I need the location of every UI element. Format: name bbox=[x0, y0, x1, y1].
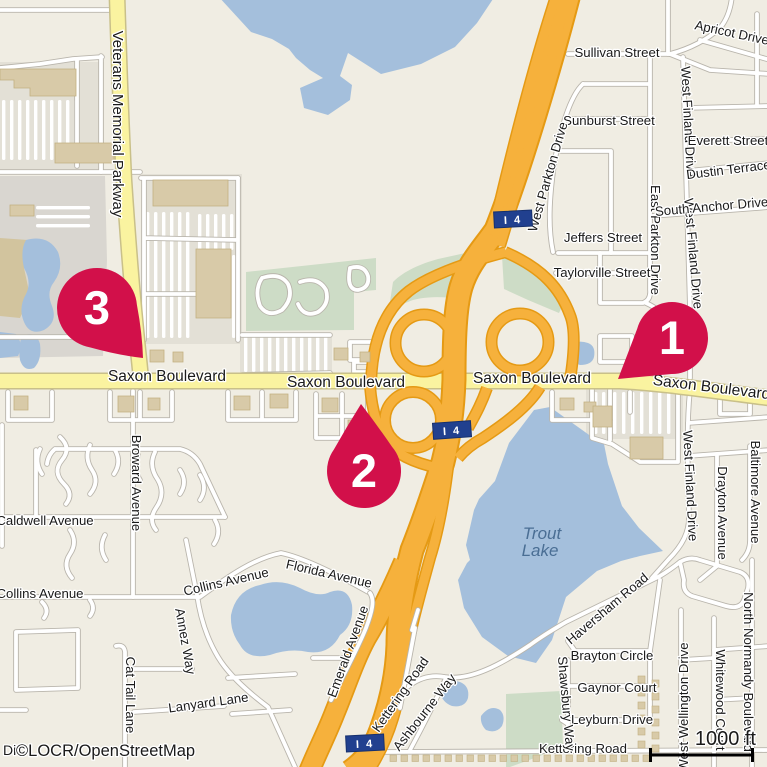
svg-text:Saxon Boulevard: Saxon Boulevard bbox=[473, 370, 591, 387]
svg-text:West Wellington Drive: West Wellington Drive bbox=[676, 642, 691, 767]
svg-text:Baltimore Avenue: Baltimore Avenue bbox=[748, 440, 763, 543]
svg-text:1: 1 bbox=[659, 311, 685, 364]
svg-text:Di: Di bbox=[3, 742, 16, 758]
svg-text:Caldwell Avenue: Caldwell Avenue bbox=[0, 513, 94, 528]
svg-text:1000 ft: 1000 ft bbox=[695, 728, 757, 750]
svg-text:I 4: I 4 bbox=[504, 214, 523, 227]
svg-text:Drayton Avenue: Drayton Avenue bbox=[715, 466, 730, 560]
svg-text:Saxon Boulevard: Saxon Boulevard bbox=[108, 368, 226, 385]
svg-text:I 4: I 4 bbox=[356, 738, 375, 751]
svg-text:I 4: I 4 bbox=[443, 425, 462, 438]
svg-text:Collins Avenue: Collins Avenue bbox=[0, 586, 84, 601]
svg-text:Gaynor Court: Gaynor Court bbox=[577, 680, 656, 695]
svg-text:Everett Street: Everett Street bbox=[688, 133, 767, 148]
svg-text:Brayton Circle: Brayton Circle bbox=[571, 648, 654, 663]
svg-text:Leyburn Drive: Leyburn Drive bbox=[571, 712, 653, 727]
svg-text:Veterans Memorial Parkway: Veterans Memorial Parkway bbox=[109, 31, 126, 218]
svg-text:Jeffers Street: Jeffers Street bbox=[564, 230, 643, 245]
svg-text:Cat Tail Lane: Cat Tail Lane bbox=[123, 657, 138, 734]
svg-text:Lake: Lake bbox=[522, 541, 559, 560]
svg-text:Sullivan Street: Sullivan Street bbox=[574, 45, 659, 60]
svg-text:Broward Avenue: Broward Avenue bbox=[129, 435, 144, 532]
svg-text:Saxon Boulevard: Saxon Boulevard bbox=[287, 374, 405, 391]
svg-text:Kettering Road: Kettering Road bbox=[539, 741, 627, 756]
svg-text:©LOCR/OpenStreetMap: ©LOCR/OpenStreetMap bbox=[16, 742, 195, 760]
svg-text:Sunburst Street: Sunburst Street bbox=[563, 113, 655, 128]
svg-text:Taylorville Street: Taylorville Street bbox=[554, 265, 651, 280]
svg-text:2: 2 bbox=[351, 444, 377, 497]
svg-text:3: 3 bbox=[84, 281, 110, 334]
